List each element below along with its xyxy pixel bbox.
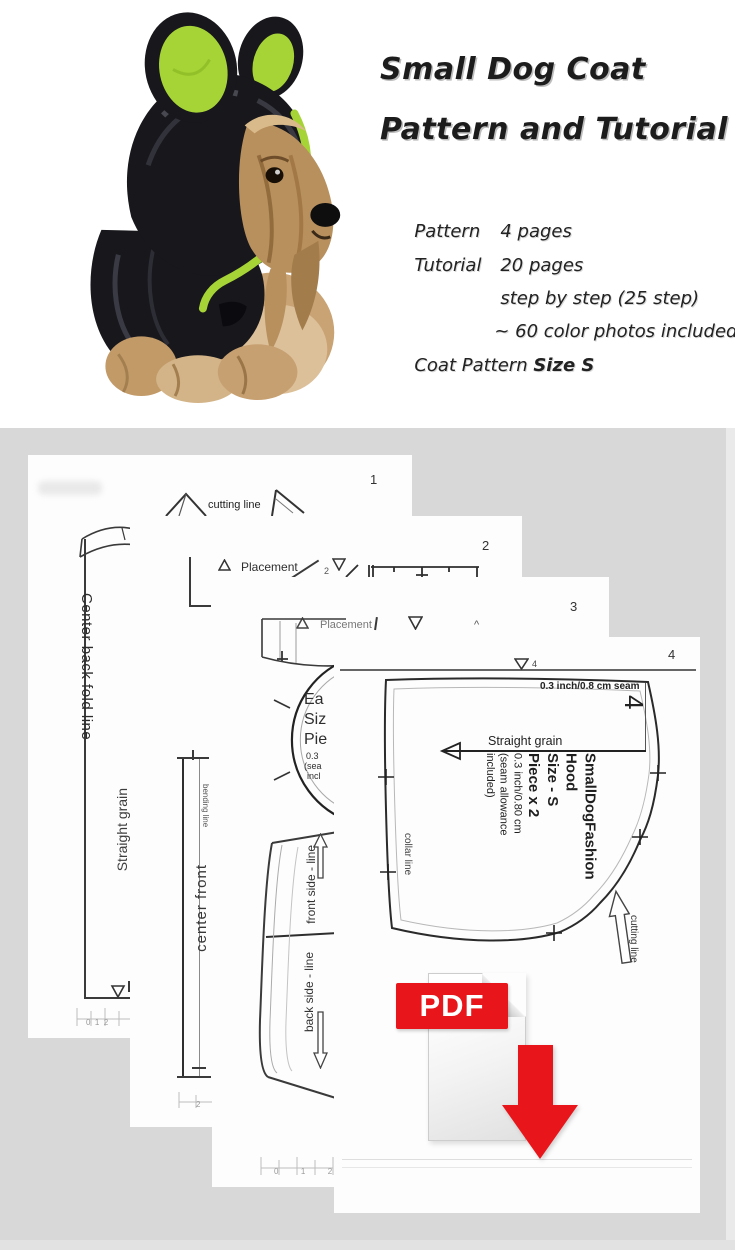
promo-pin: Small Dog Coat Pattern and Tutorial Patt… <box>0 0 735 1250</box>
download-arrow-icon[interactable] <box>496 1043 584 1165</box>
page-title-line2: Pattern and Tutorial <box>380 112 728 147</box>
ear-text-fragment: incl <box>307 771 321 781</box>
notch-triangle-down-icon <box>408 616 423 630</box>
marker-number: 4 <box>532 659 537 669</box>
arrow-down-icon <box>313 1011 328 1069</box>
placement-number: 2 <box>324 566 329 576</box>
fold-line <box>182 758 184 1078</box>
coat-pattern-label: Coat Pattern <box>414 355 533 376</box>
info-line: Size - S <box>542 753 561 953</box>
background-edge-strip <box>726 428 735 1250</box>
dog-eye <box>266 167 284 183</box>
arrow-up-icon <box>313 833 328 879</box>
info-line: included) <box>482 753 496 953</box>
bending-line-label: bending line <box>201 784 210 827</box>
page-number: 3 <box>570 599 577 614</box>
ear-text-fragment: Pie <box>304 731 327 749</box>
info-line: 0.3 inch/0.80 cm <box>510 753 524 953</box>
pdf-label: PDF <box>420 988 485 1024</box>
pattern-page-4: 4 4 0.3 inch/0.8 cm seam 4 Straight grai… <box>334 637 700 1213</box>
ear-text-fragment: Siz <box>304 711 326 729</box>
piece-info-block: SmallDogFashion Hood Size - S Piece x 2 … <box>482 753 598 953</box>
header-section: Small Dog Coat Pattern and Tutorial Patt… <box>0 0 735 428</box>
spec-row-size: Coat Pattern Size S <box>380 334 730 397</box>
ruler-numbers: 2 <box>196 1100 200 1109</box>
ear-text-fragment: 0.3 <box>306 751 319 761</box>
page-title-line1: Small Dog Coat <box>380 52 646 87</box>
notch-triangle-down-icon <box>514 658 529 670</box>
info-line: Piece x 2 <box>523 753 542 953</box>
collar-line-label: collar line <box>402 833 413 875</box>
caret-mark: ^ <box>474 619 479 631</box>
notch-triangle-icon <box>110 984 126 998</box>
info-line: SmallDogFashion <box>580 753 599 953</box>
cutting-line-label: cutting line <box>208 499 261 511</box>
dog-nose <box>310 203 340 227</box>
big-piece-number: 4 <box>618 695 649 709</box>
seam-note: 0.3 inch/0.8 cm seam <box>540 681 640 692</box>
ear-text-fragment: (sea <box>304 761 322 771</box>
center-front-label: center front <box>193 864 210 952</box>
background-bottom-strip <box>0 1240 735 1250</box>
page-number: 4 <box>668 647 675 662</box>
page-number: 1 <box>370 472 377 487</box>
pdf-badge[interactable]: PDF <box>396 983 508 1029</box>
dog-photo <box>22 6 344 404</box>
placement-label: Placement <box>241 560 298 574</box>
comb-bracket-icon <box>344 545 484 579</box>
ear-text-fragment: Ea <box>304 691 324 709</box>
info-line: Hood <box>561 753 580 953</box>
ruler-numbers: 0 1 2 <box>274 1167 338 1176</box>
ruler-numbers: 0 1 2 <box>86 1018 108 1027</box>
coat-pattern-size: Size S <box>533 355 594 376</box>
info-line: (seam allowance <box>496 753 510 953</box>
cutting-line-label: cutting line <box>628 915 639 963</box>
straight-grain-label: Straight grain <box>114 788 130 871</box>
placement-triangle-icon <box>218 559 231 571</box>
center-back-fold-label: Center back fold line <box>78 593 95 740</box>
